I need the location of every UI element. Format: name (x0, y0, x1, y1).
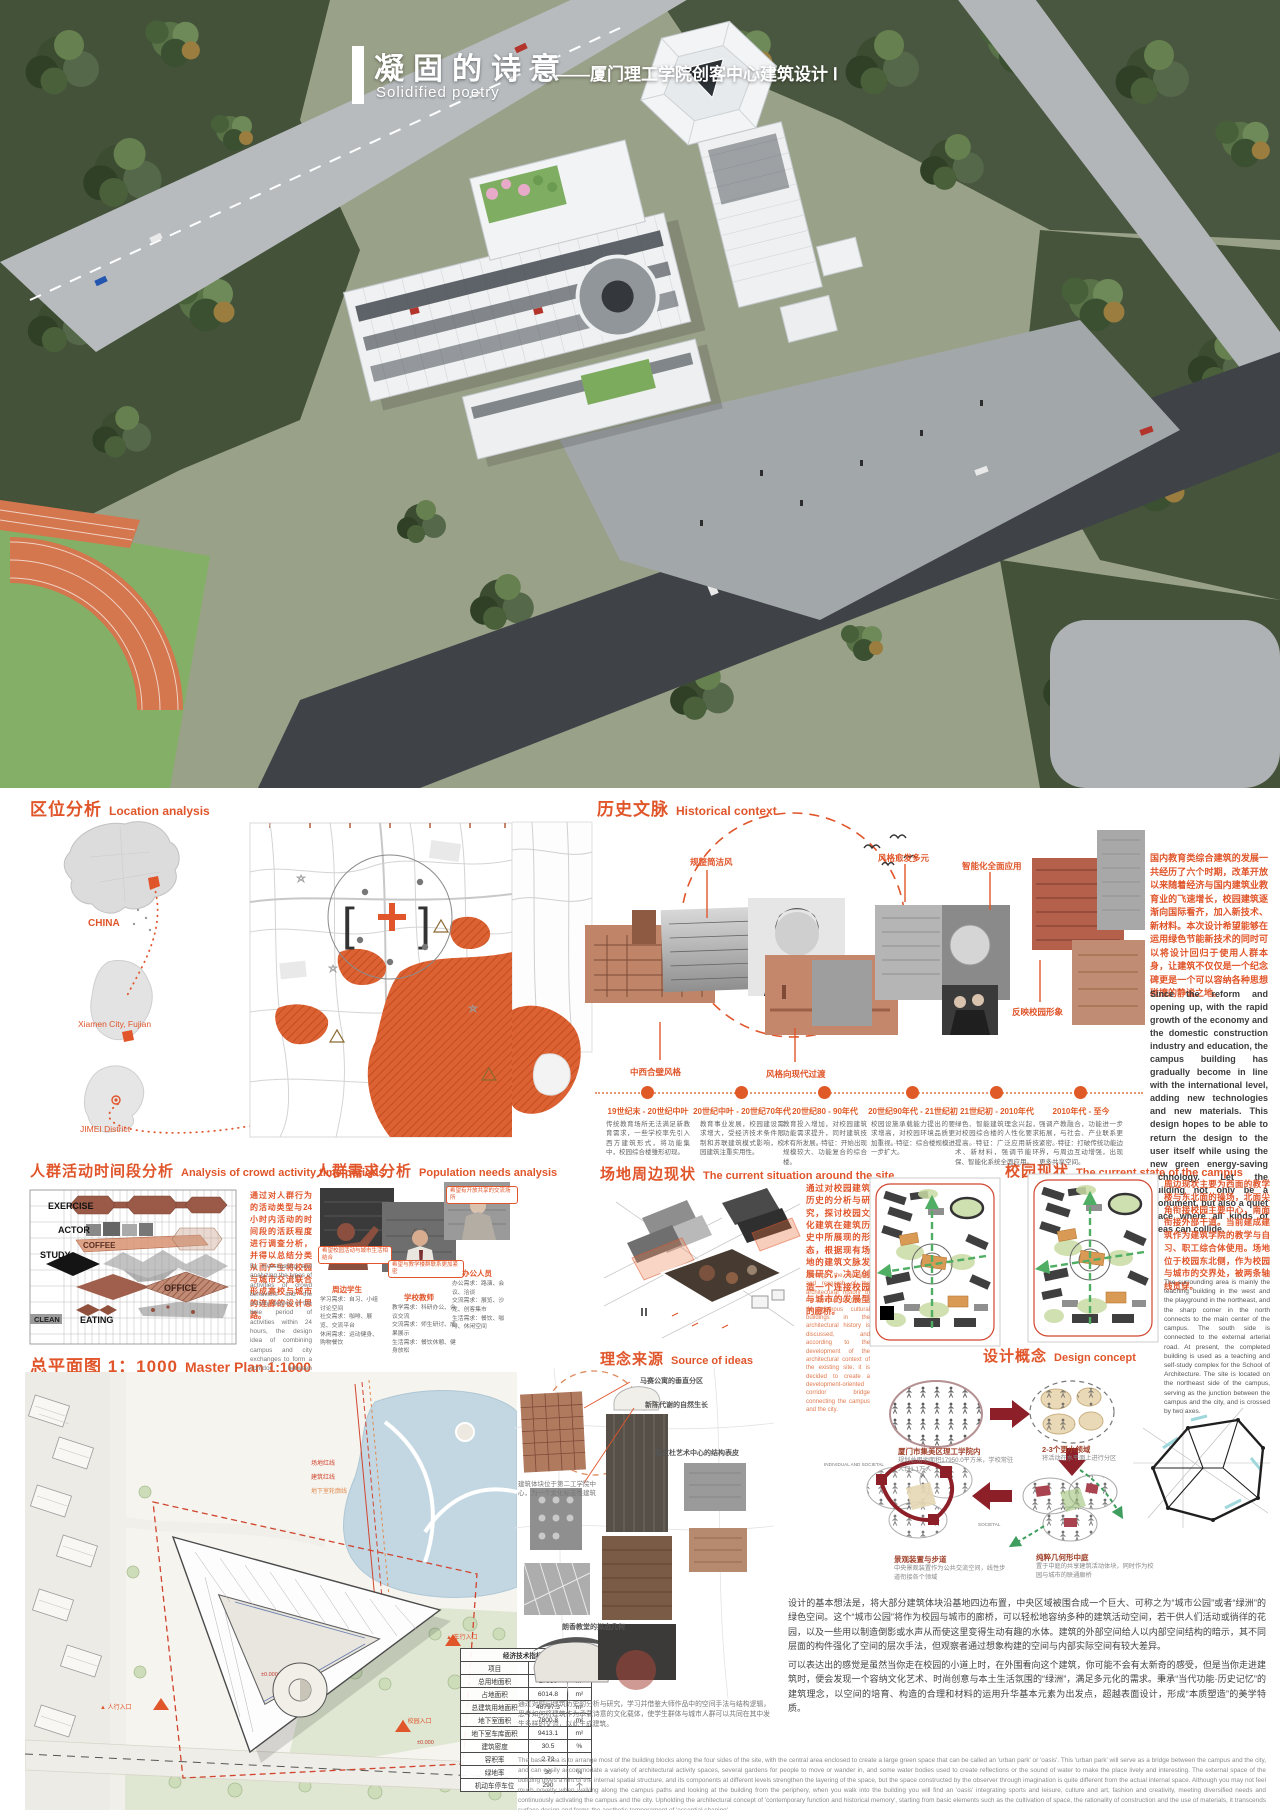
step3-sub: 置于中庭的共享建筑活动体块，同时作为校园与城市的联通廊桥 (1036, 1563, 1154, 1580)
district-map: [ ] (250, 823, 512, 1137)
map-fragment (512, 822, 592, 1114)
concept-title-en: Design concept (1054, 1352, 1136, 1364)
group-label-students: 周边学生 (332, 1284, 362, 1295)
tag-societal: SOCIETAL (978, 1522, 1001, 1527)
timeline-desc: 教育事业发展，校园建设需求增大，受经济技术条件限制和苏联建筑模式影响，校园建筑注… (700, 1120, 784, 1158)
timeline-dot (990, 1086, 1003, 1099)
timeline-dot (818, 1086, 831, 1099)
china-map: CHINA (64, 822, 179, 931)
poster-title-cn: 凝固的诗意 (374, 44, 569, 88)
annotation-bottom-1: 中西合璧风格 (630, 1066, 681, 1078)
timeline-desc: 校园设施承载能力提出的要求增高，对校园环境品质更加重视。·特征：综合楼规模进一步… (871, 1120, 955, 1158)
idea-label-ronchamp: 朗香教堂的拟态几何 (562, 1622, 625, 1632)
step4-label: 景观装置与步道 (894, 1554, 947, 1565)
jimei-label: JIMEI District (80, 1124, 131, 1134)
ideas-title-cn: 理念来源 (600, 1351, 664, 1368)
group-needs-office: 办公需求：路演、会议、洽谈交流需求：展览、沙龙、创客集市生活需求：餐饮、咖啡、休… (452, 1280, 510, 1332)
step2-label: 2-3个更小领域 (1042, 1444, 1090, 1455)
level-mark: ±0.000 (417, 1740, 434, 1746)
teacher-figure (412, 1230, 428, 1246)
group-label-office: 办公人员 (462, 1268, 492, 1279)
group-needs-teachers: 教学需求：科研办公、会议交流交流需求：师生研讨、成果展示生活需求：餐饮休憩、健身… (392, 1304, 456, 1356)
basement-line-label: 地下室轮廓线 (311, 1486, 347, 1495)
concept-diagrams: INDIVIDUAL AND SOCIETAL SOCIETAL (778, 1368, 1270, 1568)
needs-title-cn: 人群需求分析 (316, 1163, 412, 1180)
xiamen-label: Xiamen City, Fujian (78, 1019, 151, 1029)
annotation-top-1: 规整简洁风 (690, 856, 733, 868)
concept-step2 (1030, 1381, 1114, 1443)
ideas-paragraph: 通过对校园建筑历史的分析与研究，学习并借鉴大师作品中的空间手法与结构逻辑，思考如… (518, 1700, 770, 1731)
bracket-left: [ (342, 898, 355, 950)
annotation-bottom-2: 风格向现代过渡 (766, 1068, 826, 1080)
city-photos (684, 1463, 747, 1572)
china-label: CHINA (88, 918, 120, 929)
timeline-desc: 绿色、智能建筑理念兴起，对校园综合楼的人性化要求提高。·特征：广泛应用新技术、新… (955, 1120, 1039, 1167)
master-plan: ±0.000 ±0.000 (25, 1372, 517, 1810)
campus-maps (866, 1172, 1162, 1350)
poster-subtitle: ——厦门理工学院创客中心建筑设计 Ⅰ (556, 60, 838, 85)
arrow-right-icon (990, 1400, 1030, 1428)
tower-collage (598, 1387, 676, 1690)
timeline-desc: 强调产教融合，功能进一步拓展，与社会、产业联系更紧密。·特征：打破传统功能边界，… (1039, 1120, 1123, 1167)
annotation-top-2: 风格愈发多元 (878, 852, 929, 864)
concept-title-cn: 设计概念 (983, 1348, 1047, 1365)
group-label-teachers: 学校教师 (404, 1292, 434, 1303)
site-redline-label: 场地红线 (311, 1458, 335, 1467)
jimei-map: JIMEI District (80, 1066, 144, 1134)
timeline-period: 2010年代 - 至今 (1031, 1106, 1131, 1117)
timeline-desc: 教育投入增加，对校园建筑功能需求提升，同时建筑技术有所发展。·特征：开始出现规模… (783, 1120, 867, 1167)
level-mark: ±0.000 (261, 1672, 278, 1678)
pond (344, 1391, 517, 1598)
step1-sub: 规划总用地面积17950.0平方米，学校常驻人口1.1万人 (898, 1457, 1016, 1474)
idea-label-metabolism: 新陈代谢的自然生长 (645, 1400, 708, 1410)
teacher-bubble: 希望与教学楼群联系更加紧密 (388, 1260, 464, 1278)
step1-label: 厦门市集美区理工学院内 (898, 1446, 981, 1457)
historic-photos (585, 830, 1145, 1035)
timeline-desc: 传统教育场所无法满足新教育需求，一些学校率先引入西方建筑形式，将功能集中，校园综… (606, 1120, 690, 1158)
row-clean: CLEAN (34, 1315, 60, 1324)
needs-title-en: Population needs analysis (419, 1167, 557, 1179)
history-timeline: 19世纪末 - 20世纪中叶 20世纪中叶 - 20世纪70年代 20世纪80 … (595, 1086, 1143, 1186)
concept-paragraph-2: 可以表达出的感觉是虽然当你走在校园的小道上时，在外围看向这个建筑，你可能不会有太… (788, 1658, 1266, 1716)
idea-label-unite: 马赛公寓的垂直分区 (640, 1376, 703, 1386)
section-needs: 人群需求分析Population needs analysis (316, 1160, 557, 1181)
concept-paragraph-1: 设计的基本想法是，将大部分建筑体块沿基地四边布置，中央区域被围合成一个巨大、可称… (788, 1596, 1266, 1654)
concept-step1 (890, 1381, 982, 1447)
step2-sub: 将活动在水平面上进行分区 (1042, 1455, 1142, 1464)
concept-step3 (1014, 1470, 1120, 1544)
concept-sketch (1133, 1408, 1270, 1528)
campus-entry-label: ▲ 校园入口 (400, 1716, 432, 1725)
step4-sub: 中央景观装置作为公共交流空间，线性步道衔接各个领域 (894, 1565, 1006, 1582)
arrow-left-icon (972, 1482, 1012, 1510)
exercise-shape (70, 1196, 227, 1214)
row-office: OFFICE (164, 1283, 197, 1293)
title-bar-mark (352, 46, 364, 104)
unite-photo (520, 1391, 586, 1472)
table-row: 建筑密度30.5% (461, 1740, 592, 1753)
activity-chart: EXERCISE ACTOR COFFEE STUDY OFFICE EATIN… (28, 1186, 240, 1348)
timeline-line (595, 1092, 1143, 1094)
location-maps: CHINA Xiamen City, Fujian JIMEI District (30, 812, 512, 1148)
group-needs-students: 学习需求：自习、小组讨论空间社交需求：咖啡、展览、交流平台休闲需求：运动健身、购… (320, 1296, 382, 1348)
timeline-dot (735, 1086, 748, 1099)
row-coffee: COFFEE (83, 1241, 116, 1250)
annotation-bottom-3: 反映校园形象 (1012, 1006, 1063, 1018)
bracket-right: ] (418, 898, 431, 950)
timeline-dot (641, 1086, 654, 1099)
row-eating: EATING (80, 1315, 113, 1325)
ideas-note: 建筑体块位于第二工学院中心，为一个文化标志性建筑 (518, 1480, 608, 1498)
tag-individual-societal: INDIVIDUAL AND SOCIETAL (824, 1462, 884, 1467)
annotation-top-3: 智能化全面应用 (962, 860, 1022, 872)
row-actor: ACTOR (58, 1225, 90, 1235)
student-bubble: 希望校园活动与城市生活相结合 (318, 1246, 392, 1264)
timeline-dot (1074, 1086, 1087, 1099)
presentation-board: 凝固的诗意 Solidified poetry ——厦门理工学院创客中心建筑设计… (0, 0, 1280, 1810)
actor-shape (86, 1222, 153, 1236)
poster-title-en: Solidified poetry (376, 84, 500, 101)
aerial-render (0, 0, 1280, 788)
section-ideas: 理念来源Source of ideas (600, 1348, 753, 1369)
office-bubble: 希望有开放共享的交流场所 (446, 1186, 518, 1204)
history-intro-cn: 国内教育类综合建筑的发展一共经历了六个时期，改革开放以来随着经济与国内建筑业教育… (1150, 852, 1268, 1001)
row-study: STUDY (40, 1250, 71, 1260)
row-exercise: EXERCISE (48, 1201, 94, 1211)
step3-label: 纯粹几何形中庭 (1036, 1552, 1089, 1563)
pompidou-photo (524, 1563, 590, 1615)
timeline-dot (906, 1086, 919, 1099)
vehicle-entry-label: ▲ 车行入口 (446, 1632, 478, 1641)
timeline-period: 19世纪末 - 20世纪中叶 (598, 1106, 698, 1117)
concept-fine-print: The basic idea is to arrange most of the… (518, 1756, 1266, 1810)
ideas-title-en: Source of ideas (671, 1355, 753, 1367)
activity-title-cn: 人群活动时间段分析 (30, 1163, 174, 1180)
ideas-collage (514, 1368, 774, 1698)
campus-text-cn: 周边现状主要为西面的教学楼与东北面的操场，北面尖角衔接校园主要中心，南面衔接外部… (1164, 1178, 1270, 1293)
site-isometric-diagram (602, 1178, 802, 1344)
building-redline-label: 建筑红线 (311, 1472, 335, 1481)
timeline-period: 20世纪80 - 90年代 (775, 1106, 875, 1117)
idea-label-pompidou: 蓬皮杜艺术中心的结构表皮 (655, 1448, 739, 1458)
fujian-map: Xiamen City, Fujian (78, 960, 152, 1042)
walk-entry-label: ▲ 人行入口 (100, 1702, 132, 1711)
student-figure (337, 1223, 355, 1241)
